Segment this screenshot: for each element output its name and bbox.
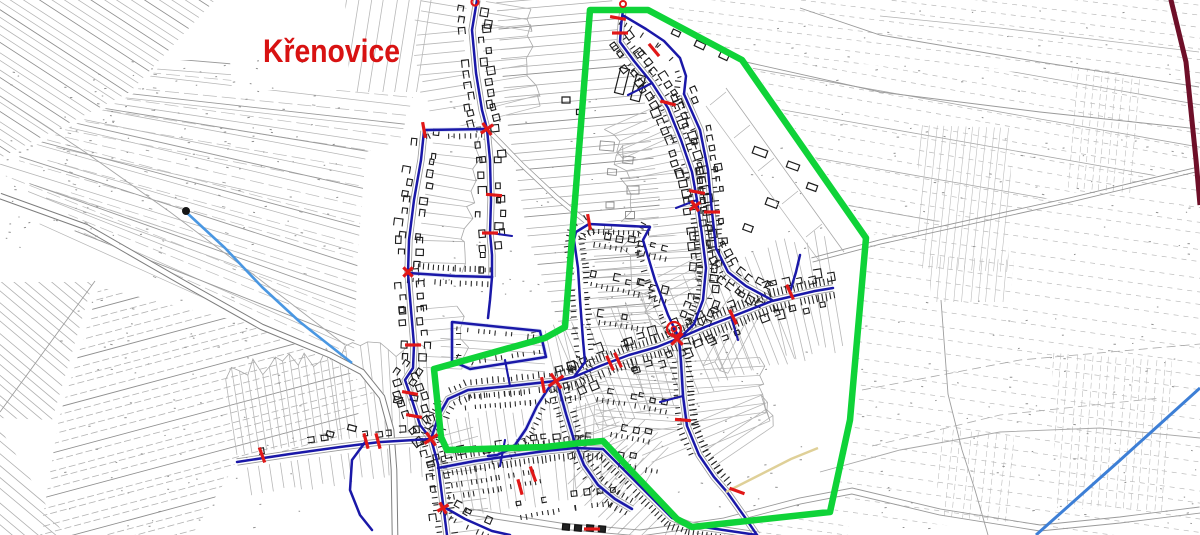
svg-text:Křenovice: Křenovice [263,33,400,69]
